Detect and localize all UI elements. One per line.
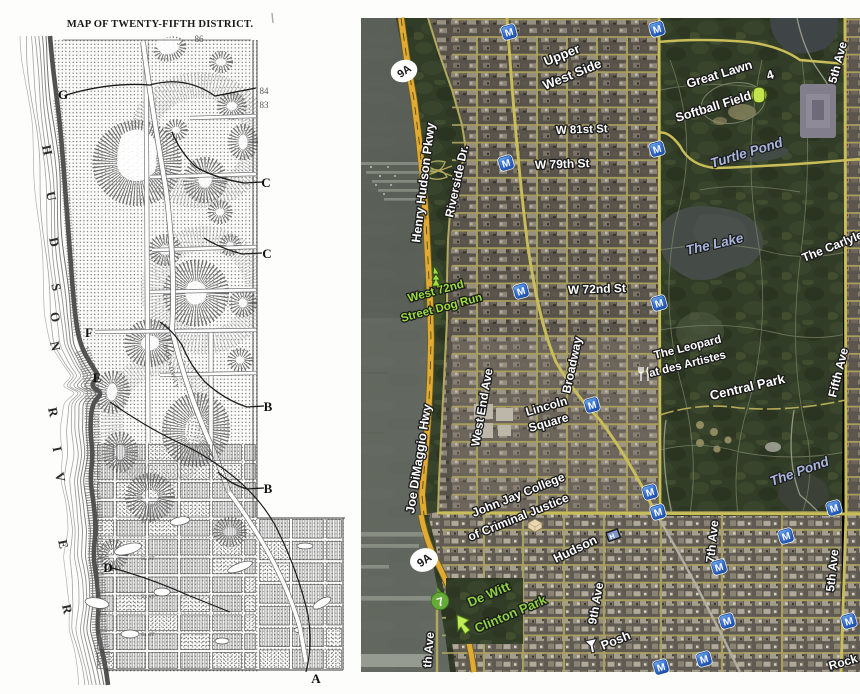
- svg-text:53 ST: 53 ST: [141, 594, 155, 600]
- svg-text:C: C: [262, 246, 271, 261]
- svg-text:W 81st St: W 81st St: [556, 123, 608, 137]
- svg-text:W 79th St: W 79th St: [535, 156, 590, 172]
- svg-text:84: 84: [260, 86, 270, 96]
- svg-text:G: G: [58, 87, 68, 102]
- svg-text:MAP OF TWENTY-FIFTH DISTRICT.: MAP OF TWENTY-FIFTH DISTRICT.: [67, 19, 254, 30]
- svg-text:C: C: [261, 175, 270, 190]
- svg-text:B: B: [264, 481, 273, 496]
- svg-text:F: F: [85, 325, 93, 340]
- svg-text:B: B: [264, 399, 273, 414]
- svg-text:83: 83: [260, 100, 270, 110]
- svg-text:51 ST: 51 ST: [141, 632, 155, 638]
- svg-text:D: D: [103, 560, 112, 575]
- svg-text:E: E: [93, 370, 102, 385]
- svg-text:W 72nd St: W 72nd St: [568, 281, 626, 297]
- svg-text:57 ST: 57 ST: [141, 519, 155, 525]
- svg-text:A: A: [311, 671, 321, 686]
- svg-text:86: 86: [195, 34, 205, 44]
- svg-text:55 ST: 55 ST: [141, 556, 155, 562]
